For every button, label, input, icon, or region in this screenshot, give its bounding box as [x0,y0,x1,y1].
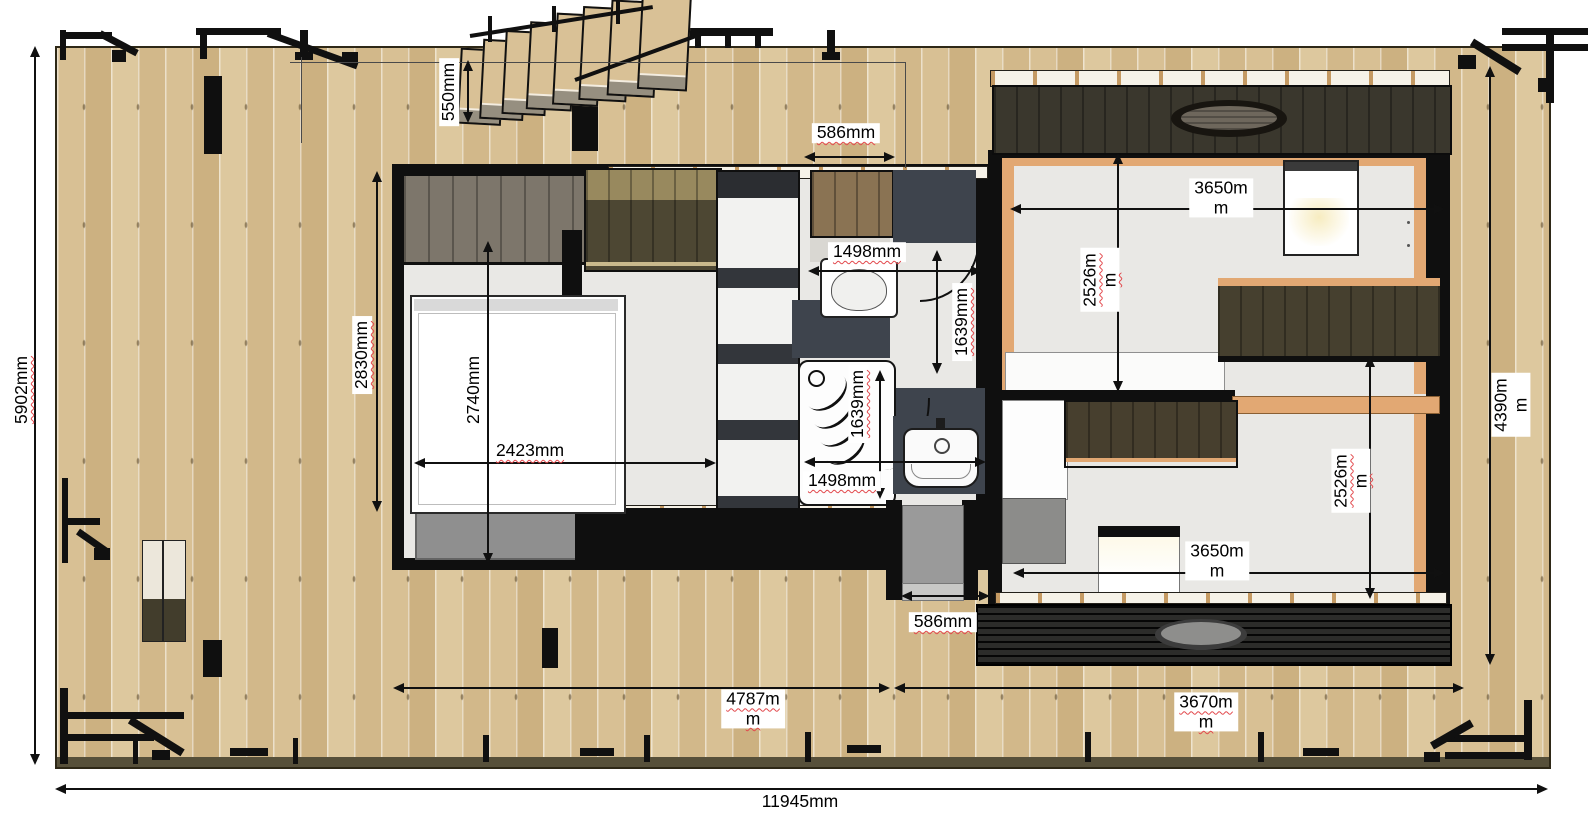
dim-wc-width-line [810,270,980,272]
dim-rear-door-line [903,595,988,597]
extension-line [290,62,906,63]
module-1-bottom-band [575,508,905,570]
railing-post-icon [1085,732,1091,762]
bench-icon [230,748,268,756]
dim-bedroom-width-label: 2423mm [491,441,569,461]
dim-bedroom-width-line [416,462,714,464]
module-2-bottom-wall [995,592,1447,604]
kitchen-unit [1064,400,1238,468]
stair-handrail-post [616,0,620,24]
bench-icon [847,745,881,753]
railing-icon [1538,78,1554,92]
dim-bedroom-outer-line [376,173,378,510]
railing-icon [1458,55,1476,69]
bedroom2-door-head [1098,526,1180,537]
bedroom2-wall-trim [1414,412,1426,598]
railing-icon [112,50,126,62]
dim-deck-depth-label: 5902mm [12,351,32,429]
cabinet-shelf [718,420,798,440]
bench-leg [755,36,761,48]
entry-door [810,170,894,238]
kitchen-counter-top [586,170,720,200]
stair-handrail-post [488,16,492,42]
deck-mat-divider [162,541,164,641]
faucet-icon [936,418,945,430]
living-room-wall-trim [1002,158,1426,166]
railing-post-icon [644,735,650,762]
dim-module1-length-line [395,687,888,689]
bench-icon [580,748,614,756]
dim-rear-door-label: 586mm [909,612,977,632]
spa-tub-top [1181,106,1277,130]
deck-post [542,628,558,668]
dim-wc-depth-label: 1639mm [952,283,972,361]
detail-dot [1407,244,1410,247]
railing-post-icon [133,738,138,764]
deck-steps-icon [64,734,154,741]
dim-entry-door-label: 586mm [812,123,880,143]
deck-steps-icon [1445,735,1530,742]
deck-steps-icon [152,750,170,760]
spa-tub-icon [1171,100,1287,137]
detail-dot [1407,221,1410,224]
dim-bedroom2-depth-label: 2526m m [1331,449,1370,513]
dim-bathroom-depth-label: 1639mm [848,365,868,443]
deck-mat [142,540,186,642]
wardrobe-base [1218,356,1440,362]
kitchen-counter [584,168,722,272]
wardrobe-cabinets [716,170,800,562]
dim-deck-width-label: 11945mm [757,792,844,812]
railing-icon [62,518,100,525]
dim-wc-width-label: 1498mm [828,242,906,262]
sink-basin-line [911,464,971,479]
dim-bedroom-inner-line [487,243,489,562]
dim-deck-depth-line [34,48,36,763]
wardrobe-body [1218,286,1440,356]
deck-steps-icon [1445,752,1530,759]
railing-post-icon [1258,732,1264,762]
kitchen-unit-top [1066,402,1236,458]
dim-module1-length-label: 4787m m [721,689,785,728]
lamp-glow [1289,198,1349,246]
cabinet-top [718,172,798,198]
dim-bedroom-outer-label: 2830mm [352,316,372,394]
rear-door-post [886,500,902,600]
dim-entry-door-line [806,156,893,158]
dresser-top [1285,162,1357,171]
dim-wc-depth-line [936,252,938,372]
dim-bathroom-width-label: 1498mm [803,471,881,491]
divider-wall-timber [1232,396,1440,414]
dim-bathroom-width-line [806,461,984,463]
railing-icon [1502,28,1588,35]
deck-steps-icon [64,712,184,719]
kitchen-counter-body [586,200,720,262]
bed-inner [418,313,616,505]
extension-line [301,57,302,143]
railing-icon [1502,44,1588,51]
railing-post-icon [293,738,298,764]
railing-post-icon [483,735,489,762]
rear-door [902,505,964,585]
extension-line [905,62,906,168]
bench-leg [725,36,731,48]
dim-module2-length-line [896,687,1462,689]
deck-steps-icon [1424,752,1440,762]
dim-module2-depth-line [1489,68,1491,663]
dim-module2-depth-label: 4390m m [1491,373,1530,437]
railing-icon [200,33,207,59]
deck-post [204,76,222,154]
railing-post-icon [822,52,840,60]
toilet-icon [820,258,898,318]
round-table-top [1161,622,1241,645]
round-table-icon [1155,619,1247,650]
bedroom2-door [1098,526,1180,600]
dim-stair-offset-label: 550mm [439,58,459,126]
dim-stair-offset-line [467,62,469,121]
wardrobe-trim [1218,278,1440,286]
dim-bedroom-inner-label: 2740mm [464,351,484,429]
deck-steps-icon [60,688,68,764]
railing-icon [94,548,110,560]
wardrobe [1218,278,1440,362]
bed-head [414,299,618,311]
cabinet-white [1002,400,1068,500]
wall-partition [893,170,976,243]
dim-deck-width-line [57,788,1546,790]
kitchen-unit-edge [1066,458,1236,462]
bench-icon [1303,748,1339,756]
sink-icon [903,428,979,488]
deck-steps-icon [1524,700,1532,760]
cabinet-gray [1002,498,1066,564]
bed [410,295,626,514]
railing-post-icon [295,52,313,60]
dim-living-width-label: 3650m m [1189,178,1253,217]
stair-handrail-post [552,6,556,32]
rear-door-post [962,500,978,600]
floor-plan: 5902mm 11945mm 550mm 586mm 1498mm 1639mm… [0,0,1590,826]
dim-living-depth-label: 2526m m [1080,248,1119,312]
cabinet-shelf [718,268,798,288]
kitchen-counter-edge [586,262,720,266]
cabinet-shelf [718,344,798,364]
dim-bedroom2-width-label: 3650m m [1185,541,1249,580]
deck-post [203,640,222,677]
shower-head-icon [808,370,825,387]
railing-post-icon [805,732,811,762]
toilet-bowl [831,269,887,311]
sink-drain [934,438,950,454]
dim-module2-length-label: 3670m m [1174,692,1238,731]
